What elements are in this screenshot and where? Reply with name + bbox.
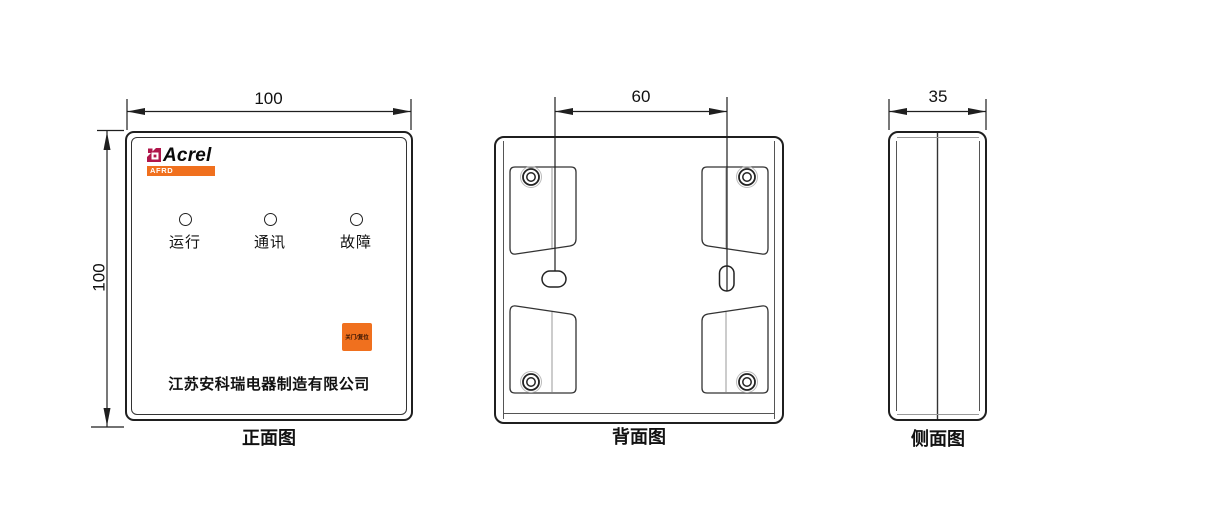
- arrowhead-bottom: [104, 408, 111, 426]
- side-view-outline: [889, 132, 986, 420]
- fault-led-icon: [350, 213, 363, 226]
- series-badge: AFRD: [147, 166, 215, 176]
- dimension-drawing-canvas: 100 100 60 35 Acrel AFRD: [0, 0, 1212, 510]
- run-led-label: 运行: [150, 231, 220, 252]
- arrowhead-right: [393, 108, 411, 115]
- screw-icon: [737, 372, 758, 393]
- company-name: 江苏安科瑞电器制造有限公司: [127, 373, 411, 394]
- indicator-run: 运行: [150, 213, 220, 252]
- arrowhead-left: [889, 108, 907, 115]
- screw-icon: [521, 372, 542, 393]
- front-view-panel: Acrel AFRD 运行 通讯 故障 关门/复位 江苏安科瑞电器制造有限公司: [125, 131, 413, 421]
- indicator-comm: 通讯: [235, 213, 305, 252]
- comm-led-label: 通讯: [235, 231, 305, 252]
- back-spacing-dim-label: 60: [611, 87, 671, 107]
- fault-led-label: 故障: [321, 231, 391, 252]
- indicator-fault: 故障: [321, 213, 391, 252]
- side-view-caption: 侧面图: [898, 425, 978, 451]
- brand-logo: Acrel AFRD: [147, 148, 215, 176]
- arrowhead-right: [709, 108, 727, 115]
- front-view-caption: 正面图: [229, 424, 309, 450]
- arrowhead-top: [104, 132, 111, 150]
- screw-icon: [521, 167, 542, 188]
- acrel-logo-icon: [147, 148, 161, 162]
- run-led-icon: [179, 213, 192, 226]
- front-width-dim-label: 100: [238, 89, 299, 109]
- close-reset-button: 关门/复位: [342, 323, 372, 351]
- brand-name: Acrel: [163, 148, 212, 163]
- front-height-dim-label: 100: [90, 248, 107, 308]
- side-depth-dim-label: 35: [908, 87, 968, 107]
- back-view-caption: 背面图: [599, 423, 679, 449]
- arrowhead-left: [555, 108, 573, 115]
- screw-icon: [737, 167, 758, 188]
- arrowhead-left: [127, 108, 145, 115]
- arrowhead-right: [968, 108, 986, 115]
- comm-led-icon: [264, 213, 277, 226]
